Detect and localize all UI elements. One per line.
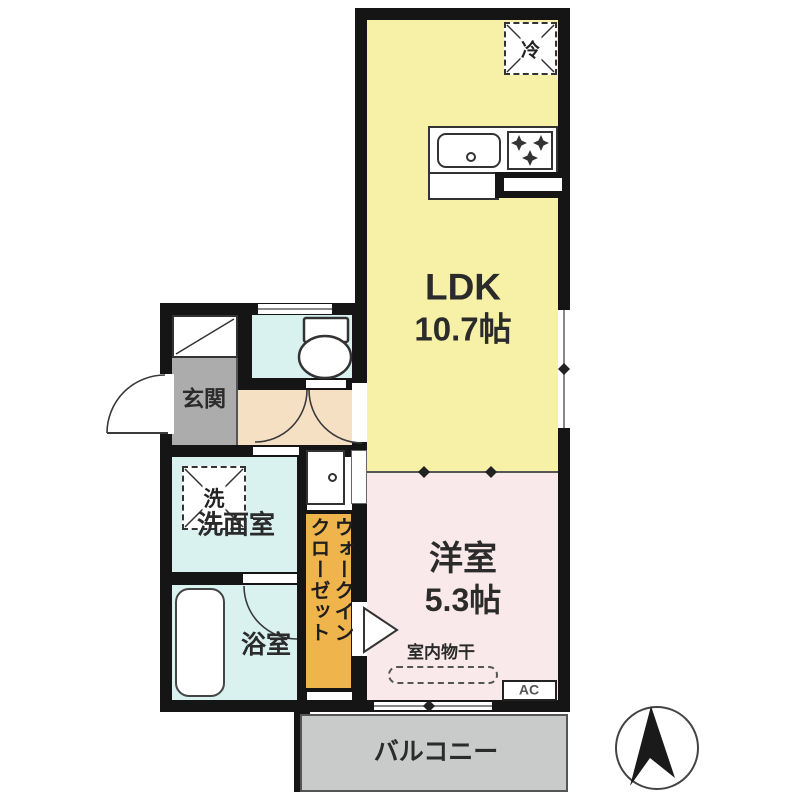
vanity-icon bbox=[306, 450, 345, 505]
wic-label: ウォークイン クローゼット bbox=[304, 517, 354, 687]
indoor-drying-label: 室内物干 bbox=[407, 644, 475, 662]
ldk-size: 10.7帖 bbox=[414, 313, 511, 348]
wall-toilet-left bbox=[238, 315, 252, 390]
door-opening-toilet bbox=[306, 380, 346, 388]
ac-label: AC bbox=[519, 683, 539, 698]
kitchen-counter-return bbox=[428, 172, 499, 200]
room-hall bbox=[238, 390, 352, 445]
balcony-label: バルコニー bbox=[374, 739, 499, 765]
kitchen-hatch-slit bbox=[504, 178, 562, 191]
entrance-door-arc bbox=[107, 375, 165, 433]
shoe-cabinet bbox=[172, 315, 238, 358]
kitchen-sink-icon bbox=[437, 133, 501, 168]
refrigerator-icon: 冷 bbox=[520, 35, 541, 62]
bedroom-size: 5.3帖 bbox=[425, 584, 502, 618]
wall-bottom bbox=[160, 700, 570, 712]
sliding-partition-line bbox=[367, 471, 558, 473]
stove-burners-icon bbox=[507, 131, 553, 170]
door-opening-hall-ldk bbox=[352, 383, 367, 442]
ldk-label: LDK bbox=[425, 269, 501, 308]
drying-rod-icon bbox=[388, 666, 498, 684]
vanity-faucet-icon bbox=[328, 473, 337, 482]
door-opening-bathroom bbox=[243, 574, 297, 583]
wall-left bbox=[160, 303, 172, 712]
entrance-label: 玄関 bbox=[182, 387, 226, 410]
wall-ldk-top bbox=[355, 8, 570, 20]
bedroom-label: 洋室 bbox=[429, 542, 497, 578]
faucet-icon bbox=[466, 152, 476, 162]
compass-north-icon bbox=[630, 706, 675, 786]
room-ldk bbox=[367, 20, 558, 472]
wall-ldk-left bbox=[355, 8, 367, 308]
door-opening-washroom bbox=[253, 447, 299, 455]
refrigerator-box: 冷 bbox=[504, 22, 557, 75]
door-opening-entrance bbox=[158, 374, 174, 434]
floor-plan: 冷 洗 bbox=[0, 0, 800, 800]
toilet-icon bbox=[290, 316, 362, 380]
wic-label-line1: ウォークイン bbox=[331, 517, 353, 643]
bathroom-label: 浴室 bbox=[241, 632, 291, 658]
door-opening-wic bbox=[352, 602, 367, 656]
compass-circle bbox=[616, 707, 698, 789]
bathtub-icon bbox=[175, 588, 225, 697]
window-toilet-line bbox=[258, 308, 332, 310]
window-bedroom-bottom-line bbox=[374, 705, 492, 707]
washroom-label: 洗面室 bbox=[197, 511, 275, 538]
wic-label-line2: クローゼット bbox=[307, 517, 329, 643]
niche-washroom bbox=[351, 450, 367, 504]
window-ldk-right-line bbox=[563, 310, 565, 428]
